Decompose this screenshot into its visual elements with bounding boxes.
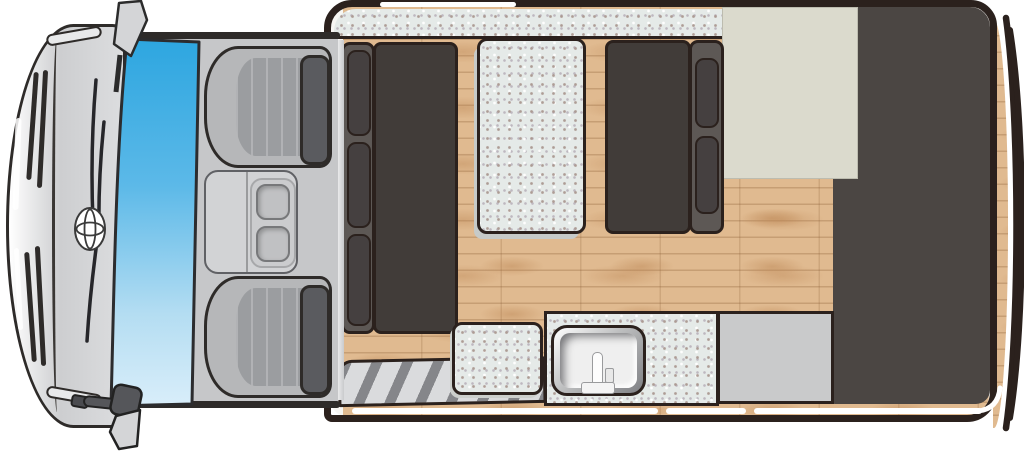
- overlay-graphics: [0, 0, 1024, 451]
- frame-corner-white-accent: [978, 388, 1000, 411]
- toyota-emblem: [75, 208, 105, 250]
- windshield: [111, 39, 199, 406]
- campervan-floorplan: [0, 0, 1024, 451]
- side-mirror-bottom: [71, 383, 143, 449]
